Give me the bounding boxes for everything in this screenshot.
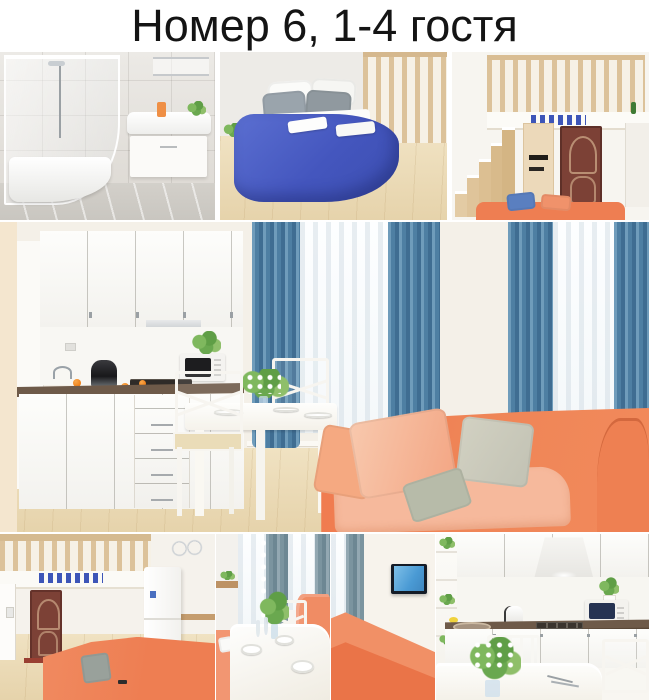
photo-kitchen-table: [436, 534, 649, 700]
table-leg: [256, 430, 265, 520]
loft-railing: [0, 541, 151, 571]
photo-sofa-tv: [331, 534, 435, 700]
window-sheer: [553, 222, 615, 427]
drawer-handles: [151, 402, 173, 502]
dining-chair: [172, 371, 240, 517]
pillow-gray: [80, 652, 112, 684]
shelf-plant: [438, 537, 455, 549]
door-panel: [37, 599, 60, 630]
chair-frame: [602, 639, 649, 694]
tv-screen: [394, 566, 424, 591]
door-panel: [570, 176, 596, 204]
loft-railing: [487, 59, 645, 113]
dining-chair-back: [602, 639, 649, 694]
shower-column: [59, 66, 61, 138]
bed-railing-rail: [363, 52, 447, 57]
fridge-label: [150, 591, 156, 598]
vanity-cabinet: [130, 136, 207, 177]
chandelier: [168, 536, 207, 558]
microwave-window: [589, 603, 615, 619]
kettle: [506, 606, 523, 623]
power-socket: [65, 343, 76, 351]
collage-title-band: Номер 6, 1-4 гостя: [0, 0, 649, 52]
photo-dining: [216, 534, 330, 700]
remote-control: [118, 680, 127, 684]
chair-frame: [175, 371, 244, 438]
tv: [391, 564, 426, 594]
towel-rack: [153, 57, 209, 76]
microwave: [585, 600, 628, 622]
chair-leg: [177, 447, 182, 517]
wall-strip-left: [0, 222, 17, 532]
plant-on-microwave: [190, 331, 221, 356]
cabinet-handles: [45, 312, 240, 318]
sink-vanity: [127, 112, 211, 183]
stair-step: [455, 191, 468, 216]
kitchen-glimpse: [216, 534, 240, 637]
photo-kitchen-living: [0, 222, 649, 532]
loft-rail-top: [487, 55, 645, 60]
bottle-green: [631, 102, 636, 114]
door-panel: [569, 136, 597, 174]
soap-bottle: [157, 102, 166, 117]
flower-dots: [245, 373, 281, 394]
entrance-door: [30, 590, 62, 660]
curtain-gray-blue: [315, 534, 330, 600]
vase: [485, 680, 500, 697]
door-panel: [38, 631, 59, 656]
kettle: [91, 360, 117, 387]
gas-stove: [536, 622, 583, 629]
plant: [186, 101, 206, 116]
shower-head: [48, 61, 65, 66]
photo-loft-hall: [0, 534, 215, 700]
wardrobe-handle-strip: [529, 155, 548, 159]
pillow-blue: [506, 192, 535, 212]
loft-rail-top: [0, 534, 151, 541]
pillow-gray: [455, 416, 534, 489]
chair-leg: [229, 447, 234, 514]
collage-title: Номер 6, 1-4 гостя: [131, 1, 518, 51]
photo-bedroom: [220, 52, 447, 220]
shower-stall: [4, 55, 120, 205]
counter-wood: [216, 581, 239, 587]
sofa-armrest: [597, 418, 649, 532]
fridge-split-line: [144, 618, 181, 620]
shelf-plant: [438, 594, 455, 606]
wall-door-right: [625, 123, 649, 207]
bouquet-white-dots: [472, 640, 515, 670]
pillow-coral: [540, 194, 571, 212]
photo-bathroom: [0, 52, 215, 220]
books-row: [39, 573, 104, 583]
photo-collage: Номер 6, 1-4 гостя: [0, 0, 649, 700]
curtain-blue: [614, 222, 649, 436]
wardrobe-handle-strip: [529, 167, 544, 171]
plate: [275, 635, 293, 645]
stove-grates: [538, 623, 581, 628]
shower-frame-top: [4, 55, 120, 59]
coral-sofa: [321, 408, 649, 532]
side-door-white: [0, 584, 16, 660]
photo-loft-stairs: [452, 52, 649, 220]
faucet: [53, 366, 72, 379]
kitchen-counter-glimpse: [181, 614, 215, 621]
plant-on-counter: [598, 577, 619, 597]
shower-tray: [9, 157, 111, 202]
microwave-buttons: [617, 604, 623, 619]
plate: [241, 644, 262, 656]
light-switch: [6, 607, 14, 618]
plant: [219, 571, 235, 580]
vanity-handle: [160, 146, 177, 148]
